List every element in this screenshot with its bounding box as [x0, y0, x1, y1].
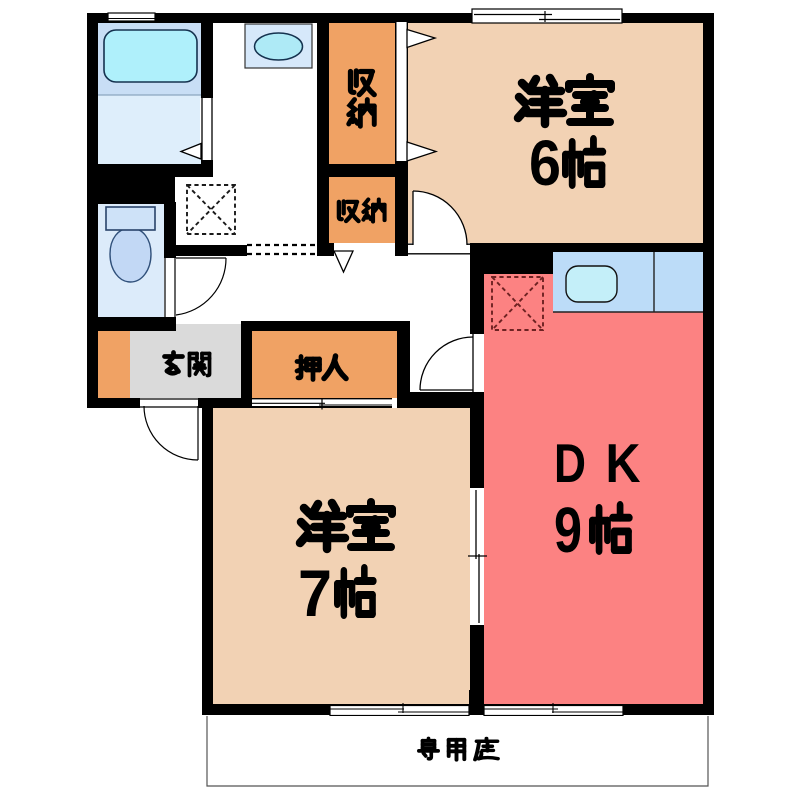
svg-text:K: K [606, 432, 641, 494]
svg-text:D: D [554, 432, 586, 494]
svg-text:6: 6 [529, 127, 561, 199]
svg-text:7: 7 [298, 556, 332, 630]
svg-text:9: 9 [554, 494, 582, 566]
